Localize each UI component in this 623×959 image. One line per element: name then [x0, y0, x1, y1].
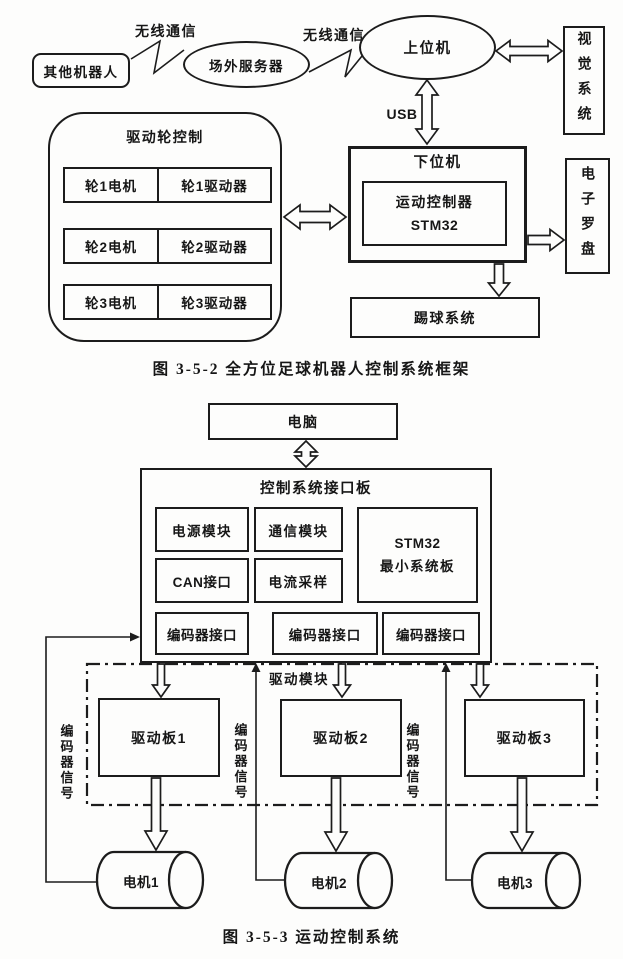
wheel-row-1: 轮1电机 轮1驱动器: [63, 167, 272, 203]
wireless-zigzag-1: [131, 41, 184, 73]
wheel3-motor-cell: 轮3电机: [65, 286, 159, 318]
scanned-page: 其他机器人 无线通信 场外服务器 无线通信 上位机 视觉系统 USB 下位机 运…: [0, 0, 623, 959]
offsite-server-ellipse: 场外服务器: [183, 41, 310, 88]
wheel3-driver-cell: 轮3驱动器: [159, 286, 270, 318]
arrow-drive1-motor1: [145, 778, 167, 850]
lower-computer-label: 下位机: [348, 151, 527, 171]
computer-label: 电脑: [288, 412, 319, 432]
arrow-lower-kick: [489, 264, 510, 296]
drive-wheel-control-title: 驱动轮控制: [48, 127, 282, 147]
arrow-lower-compass: [528, 230, 564, 251]
encoder-signal-label-2: 编码器信号: [230, 720, 250, 804]
encoder-interface-box-3: 编码器接口: [382, 612, 480, 655]
wheel1-driver-cell: 轮1驱动器: [159, 169, 270, 201]
arrow-drive2-motor2: [325, 778, 347, 851]
other-robots-box: 其他机器人: [32, 53, 130, 88]
wheel-row-2: 轮2电机 轮2驱动器: [63, 228, 272, 264]
motion-controller-chip-label: STM32: [411, 217, 459, 233]
motor1-label: 电机1: [108, 872, 174, 890]
motion-controller-box: 运动控制器 STM32: [362, 181, 507, 246]
encoder-signal-label-1: 编码器信号: [56, 722, 76, 804]
figure1-caption: 图 3-5-2 全方位足球机器人控制系统框架: [0, 357, 623, 379]
encoder-signal-label-3: 编码器信号: [402, 720, 422, 804]
interface-board-title: 控制系统接口板: [140, 477, 492, 497]
arrow-host-vision: [496, 41, 562, 62]
min-system-label: 最小系统板: [380, 559, 455, 575]
power-module-box: 电源模块: [155, 507, 249, 552]
electronic-compass-box: 电子罗盘: [565, 158, 610, 274]
drive-board-box-3: 驱动板3: [464, 699, 585, 777]
encoder-interface-box-2: 编码器接口: [272, 612, 378, 655]
encoder-interface-box-1: 编码器接口: [155, 612, 249, 655]
motor2-label: 电机2: [296, 873, 362, 891]
can-interface-box: CAN接口: [155, 558, 249, 603]
wheel-row-3: 轮3电机 轮3驱动器: [63, 284, 272, 320]
wireless-zigzag-2: [309, 50, 362, 77]
arrow-computer-board: [295, 441, 317, 467]
arrow-board-drive3: [472, 664, 489, 697]
vision-system-box: 视觉系统: [563, 26, 605, 135]
computer-box: 电脑: [208, 403, 398, 440]
drive-board-box-2: 驱动板2: [280, 699, 402, 777]
offsite-server-label: 场外服务器: [209, 55, 284, 75]
electronic-compass-label: 电子罗盘: [577, 166, 598, 266]
drive-module-title: 驱动模块: [249, 669, 349, 687]
current-sampling-box: 电流采样: [254, 558, 343, 603]
stm32-min-system-box: STM32 最小系统板: [357, 507, 478, 603]
host-computer-label: 上位机: [404, 37, 452, 58]
wheel2-driver-cell: 轮2驱动器: [159, 230, 270, 262]
vision-system-label: 视觉系统: [574, 31, 595, 131]
arrow-board-drive1: [153, 664, 170, 697]
wheel2-motor-cell: 轮2电机: [65, 230, 159, 262]
wheel1-motor-cell: 轮1电机: [65, 169, 159, 201]
arrow-drive3-motor3: [511, 778, 533, 851]
kicking-system-label: 踢球系统: [414, 308, 476, 328]
host-computer-ellipse: 上位机: [359, 15, 496, 80]
drive-board-box-1: 驱动板1: [98, 698, 220, 777]
comm-module-box: 通信模块: [254, 507, 343, 552]
motor3-label: 电机3: [482, 873, 548, 891]
figure2-caption: 图 3-5-3 运动控制系统: [0, 925, 623, 947]
wireless-link-label-1: 无线通信: [127, 22, 205, 40]
other-robots-label: 其他机器人: [44, 61, 119, 81]
kicking-system-box: 踢球系统: [350, 297, 540, 338]
usb-label: USB: [384, 105, 420, 123]
stm32-label: STM32: [394, 536, 440, 552]
arrow-wheelctrl-lower: [284, 205, 346, 229]
motion-controller-label: 运动控制器: [396, 194, 474, 210]
